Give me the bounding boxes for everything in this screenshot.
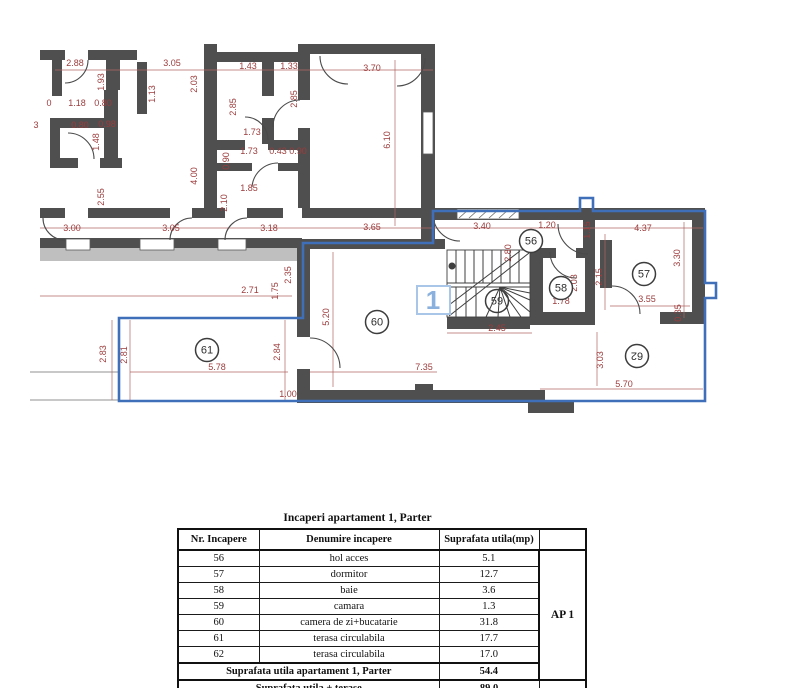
table-cell: baie [259, 583, 439, 599]
dimension-label: 3.00 [63, 223, 81, 233]
dimension-label: 2.84 [272, 343, 282, 361]
apartment-marker: 1 [417, 285, 450, 315]
dimension-label: 2.85 [228, 98, 238, 116]
dimension-label: 2.03 [189, 75, 199, 93]
table-cell: terasa circulabila [259, 647, 439, 664]
dimension-label: 1.73 [240, 146, 258, 156]
dimension-label: 4.37 [634, 223, 652, 233]
terrace-edge-lines [30, 372, 119, 400]
summary-label: Suprafata utila apartament 1, Parter [178, 663, 439, 680]
dimension-label: 5.78 [208, 362, 226, 372]
room-number-label: 57 [638, 269, 650, 281]
room-number-label: 62 [631, 349, 643, 361]
table-row: 58baie3.6 [178, 583, 586, 599]
table-row: 57dormitor12.7 [178, 567, 586, 583]
table-cell: dormitor [259, 567, 439, 583]
table-cell: hol acces [259, 550, 439, 567]
dimension-label: 3.65 [363, 222, 381, 232]
dimension-label: 1.15 [582, 221, 592, 239]
dimension-label: 0.90 [289, 146, 307, 156]
dimension-label: 2.45 [488, 323, 506, 333]
room-number-label: 60 [371, 317, 383, 329]
room-number-56: 56 [520, 230, 543, 253]
dimension-label: 1.73 [243, 127, 261, 137]
room-number-58: 58 [550, 277, 573, 300]
stairs [447, 250, 530, 317]
table-cell: 59 [178, 599, 259, 615]
apartment1-walls [297, 208, 705, 413]
dimension-label: 1.85 [240, 183, 258, 193]
dimension-label: 0.80 [94, 98, 112, 108]
dimension-label: 2.81 [119, 346, 129, 364]
summary-value: 89.0 [439, 680, 539, 688]
room-number-label: 56 [525, 236, 537, 248]
dimension-label: 1.33 [280, 61, 298, 71]
dimension-label: 3.55 [638, 294, 656, 304]
table-cell: 1.3 [439, 599, 539, 615]
dimension-label: 1.18 [68, 98, 86, 108]
dimension-label: 2.80 [503, 244, 513, 262]
table-cell: camera de zi+bucatarie [259, 615, 439, 631]
dimension-label: 2.55 [96, 188, 106, 206]
table-cell: camara [259, 599, 439, 615]
table-row: 60camera de zi+bucatarie31.8 [178, 615, 586, 631]
dimension-label: 3.30 [672, 249, 682, 267]
table-row: 59camara1.3 [178, 599, 586, 615]
dimension-label: 0.43 [269, 146, 287, 156]
dimension-label: 1.13 [147, 85, 157, 103]
table-summary-row: Suprafata utila apartament 1, Parter54.4 [178, 663, 586, 680]
dimension-label: 3.03 [595, 351, 605, 369]
dimension-label: 6.10 [382, 131, 392, 149]
room-number-61: 61 [196, 339, 219, 362]
dimension-label: 0 [46, 98, 51, 108]
table-cell: 56 [178, 550, 259, 567]
apartment-group-label: AP 1 [539, 550, 586, 680]
table-summary-row: Suprafata utila + terase89.0 [178, 680, 586, 688]
dimension-label: 3 [33, 120, 38, 130]
page: 59 1 [0, 0, 794, 688]
table-cell: 12.7 [439, 567, 539, 583]
dimension-label: 2.85 [289, 90, 299, 108]
dimension-label: 1.43 [239, 61, 257, 71]
room-number-label: 58 [555, 283, 567, 295]
dimension-label: 0.35 [673, 304, 683, 322]
dimension-label: 1.48 [91, 133, 101, 151]
dimension-label: 5.70 [615, 379, 633, 389]
summary-value: 54.4 [439, 663, 539, 680]
dimension-label: 2.83 [98, 345, 108, 363]
room-number-57: 57 [633, 263, 656, 286]
dimension-label: 2.71 [241, 285, 259, 295]
dimension-labels: 2.883.051.431.333.7001.180.8030.800.981.… [33, 58, 683, 399]
dimension-label: 7.35 [415, 362, 433, 372]
dimension-label: 3.05 [162, 223, 180, 233]
table-cell: 3.6 [439, 583, 539, 599]
table-row: 56hol acces5.1AP 1 [178, 550, 586, 567]
room-area-table: Nr. Incapere Denumire incapere Suprafata… [177, 528, 587, 688]
table-cell: 60 [178, 615, 259, 631]
dimension-label: 0.98 [98, 119, 116, 129]
room-number-62: 62 [626, 345, 649, 368]
dimension-label: 1.00 [279, 389, 297, 399]
dimension-label: 3.70 [363, 63, 381, 73]
table-row: 61terasa circulabila17.7 [178, 631, 586, 647]
table-cell: 17.0 [439, 647, 539, 664]
table-cell: 31.8 [439, 615, 539, 631]
dimension-label: 5.20 [321, 308, 331, 326]
table-cell: terasa circulabila [259, 631, 439, 647]
dimension-label: 2.88 [66, 58, 84, 68]
header-nr-incapere: Nr. Incapere [178, 529, 259, 550]
dimension-label: 2.15 [594, 268, 604, 286]
floor-plan-svg: 59 1 [0, 0, 794, 470]
table-cell: 62 [178, 647, 259, 664]
summary-label: Suprafata utila + terase [178, 680, 439, 688]
room-number-label: 61 [201, 345, 213, 357]
table-row: 62terasa circulabila17.0 [178, 647, 586, 664]
dimension-label: 2.35 [283, 266, 293, 284]
dimension-label: 0.90 [221, 152, 231, 170]
dimension-label: 2.10 [219, 194, 229, 212]
dimension-label: 3.40 [473, 221, 491, 231]
dimension-label: 4.00 [189, 167, 199, 185]
stair-newel-dot [449, 263, 456, 270]
dimension-label: 1.93 [96, 73, 106, 91]
table-cell: 17.7 [439, 631, 539, 647]
room-number-60: 60 [366, 311, 389, 334]
header-suprafata: Suprafata utila(mp) [439, 529, 539, 550]
header-denumire: Denumire incapere [259, 529, 439, 550]
table-cell: 57 [178, 567, 259, 583]
apartment-marker-label: 1 [426, 285, 440, 315]
dimension-label: 0.80 [71, 120, 89, 130]
table-cell: 61 [178, 631, 259, 647]
table-cell: 58 [178, 583, 259, 599]
dimension-label: 1.20 [538, 220, 556, 230]
dimension-label: 3.18 [260, 223, 278, 233]
table-header-row: Nr. Incapere Denumire incapere Suprafata… [178, 529, 586, 550]
table-title: Incaperi apartament 1, Parter [177, 512, 538, 524]
dimension-label: 3.05 [163, 58, 181, 68]
floor-plan: 59 1 [0, 0, 794, 470]
table-cell: 5.1 [439, 550, 539, 567]
dimension-label: 1.75 [270, 282, 280, 300]
